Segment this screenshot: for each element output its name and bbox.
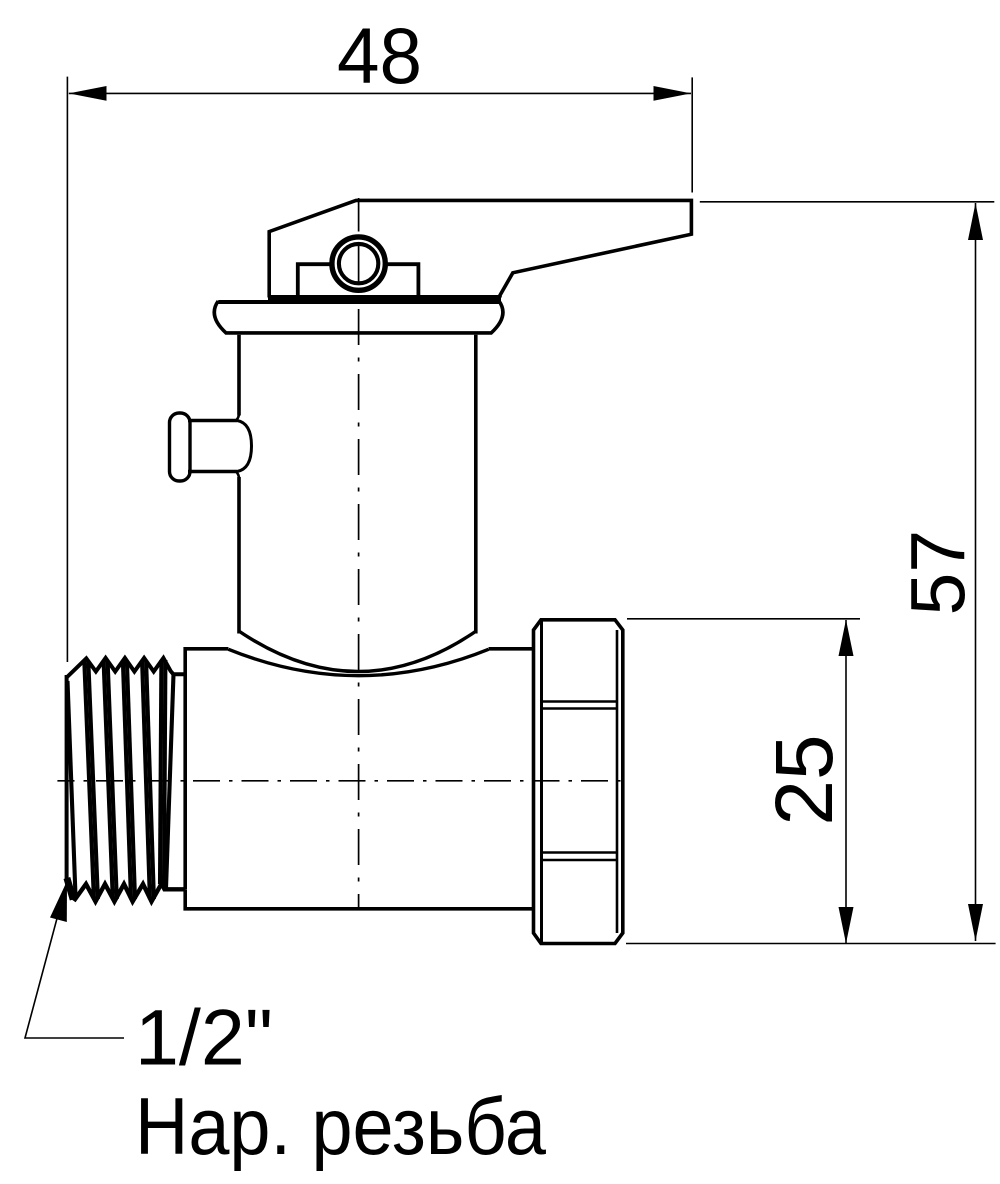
svg-text:25: 25 — [759, 734, 850, 825]
svg-text:48: 48 — [337, 11, 422, 100]
svg-text:Нар. резьба: Нар. резьба — [135, 1082, 547, 1172]
svg-text:1/2": 1/2" — [135, 993, 273, 1082]
svg-text:57: 57 — [896, 530, 982, 616]
